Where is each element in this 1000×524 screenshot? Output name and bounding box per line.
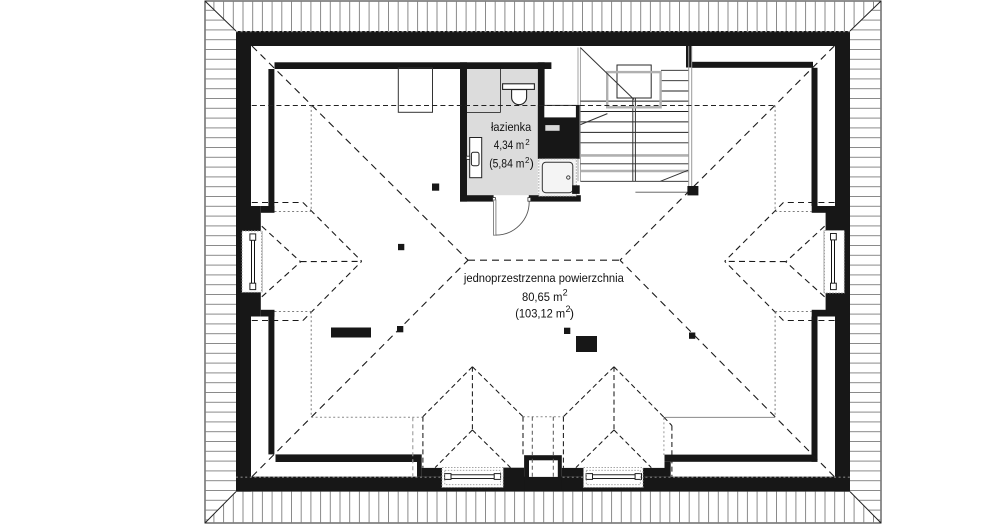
- svg-text:łazienka: łazienka: [491, 120, 531, 134]
- svg-text:): ): [530, 156, 534, 170]
- svg-text:): ): [570, 307, 574, 321]
- svg-text:(103,12 m: (103,12 m: [515, 307, 565, 321]
- svg-text:4,34 m: 4,34 m: [494, 138, 524, 152]
- svg-text:80,65 m: 80,65 m: [522, 290, 562, 304]
- svg-text:(5,84 m: (5,84 m: [489, 156, 524, 170]
- svg-text:2: 2: [525, 138, 530, 147]
- svg-text:jednoprzestrzenna powierzchnia: jednoprzestrzenna powierzchnia: [463, 271, 624, 285]
- svg-text:2: 2: [563, 288, 568, 298]
